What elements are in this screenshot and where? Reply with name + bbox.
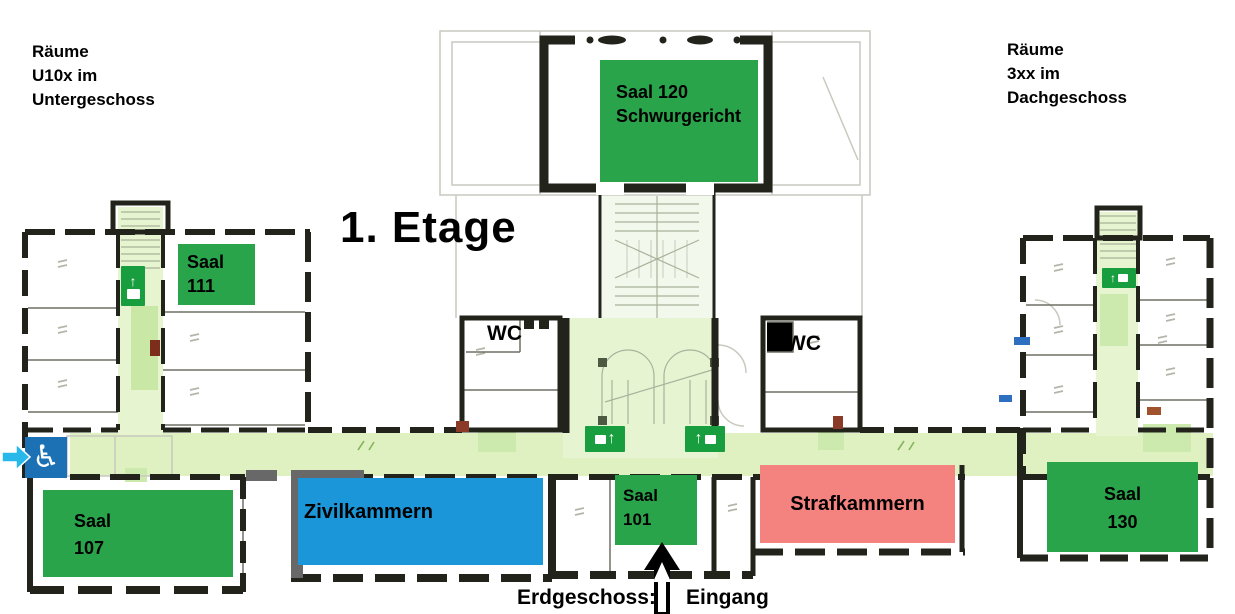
room-label: Zivilkammern [304, 500, 539, 524]
up-arrow-icon: ↑ [130, 274, 137, 288]
floor-plan: Räume U10x im Untergeschoss Räume 3xx im… [0, 0, 1235, 614]
room-label: Saal 130 [1047, 480, 1198, 536]
emergency-exit-sign-corridor-right: ↑ [685, 426, 725, 452]
accessible-entrance-arrow-icon [2, 444, 31, 471]
room-saal-111: Saal 111 [178, 244, 255, 305]
exit-pictogram-icon [595, 435, 606, 444]
room-saal-101: Saal 101 [615, 475, 697, 545]
up-arrow-icon: ↑ [695, 431, 703, 447]
room-saal-130: Saal 130 [1047, 462, 1198, 552]
room-saal-120: Saal 120 Schwurgericht [600, 60, 758, 182]
up-arrow-icon: ↑ [1110, 272, 1116, 284]
room-label: Saal 111 [187, 250, 251, 298]
room-saal-107: Saal 107 [43, 490, 233, 577]
note-attic-rooms: Räume 3xx im Dachgeschoss [1007, 38, 1127, 110]
room-label: Saal 107 [74, 508, 225, 562]
entrance-arrow-icon [642, 540, 682, 614]
room-strafkammern: Strafkammern [760, 465, 955, 543]
room-label: Strafkammern [760, 492, 955, 516]
entrance-label: Eingang [686, 586, 769, 610]
room-label: Saal 101 [623, 484, 693, 532]
emergency-exit-sign-left-wing: ↑ [121, 266, 145, 306]
room-zivilkammern: Zivilkammern [298, 478, 543, 565]
up-arrow-icon: ↑ [608, 431, 616, 447]
floor-title: 1. Etage [340, 203, 517, 253]
wheelchair-icon: ♿ [32, 442, 60, 473]
exit-pictogram-icon [705, 435, 716, 444]
note-basement-rooms: Räume U10x im Untergeschoss [32, 40, 155, 112]
ground-floor-label: Erdgeschoss: [517, 586, 656, 610]
exit-pictogram-icon [1118, 274, 1128, 282]
room-label: Saal 120 Schwurgericht [616, 80, 750, 128]
emergency-exit-sign-right-wing: ↑ [1102, 268, 1136, 288]
wc-label-right: WC [786, 332, 821, 356]
wc-label-left: WC [487, 322, 522, 346]
emergency-exit-sign-corridor-left: ↑ [585, 426, 625, 452]
wheelchair-access-sign: ♿ [25, 437, 67, 478]
exit-pictogram-icon [127, 289, 140, 299]
